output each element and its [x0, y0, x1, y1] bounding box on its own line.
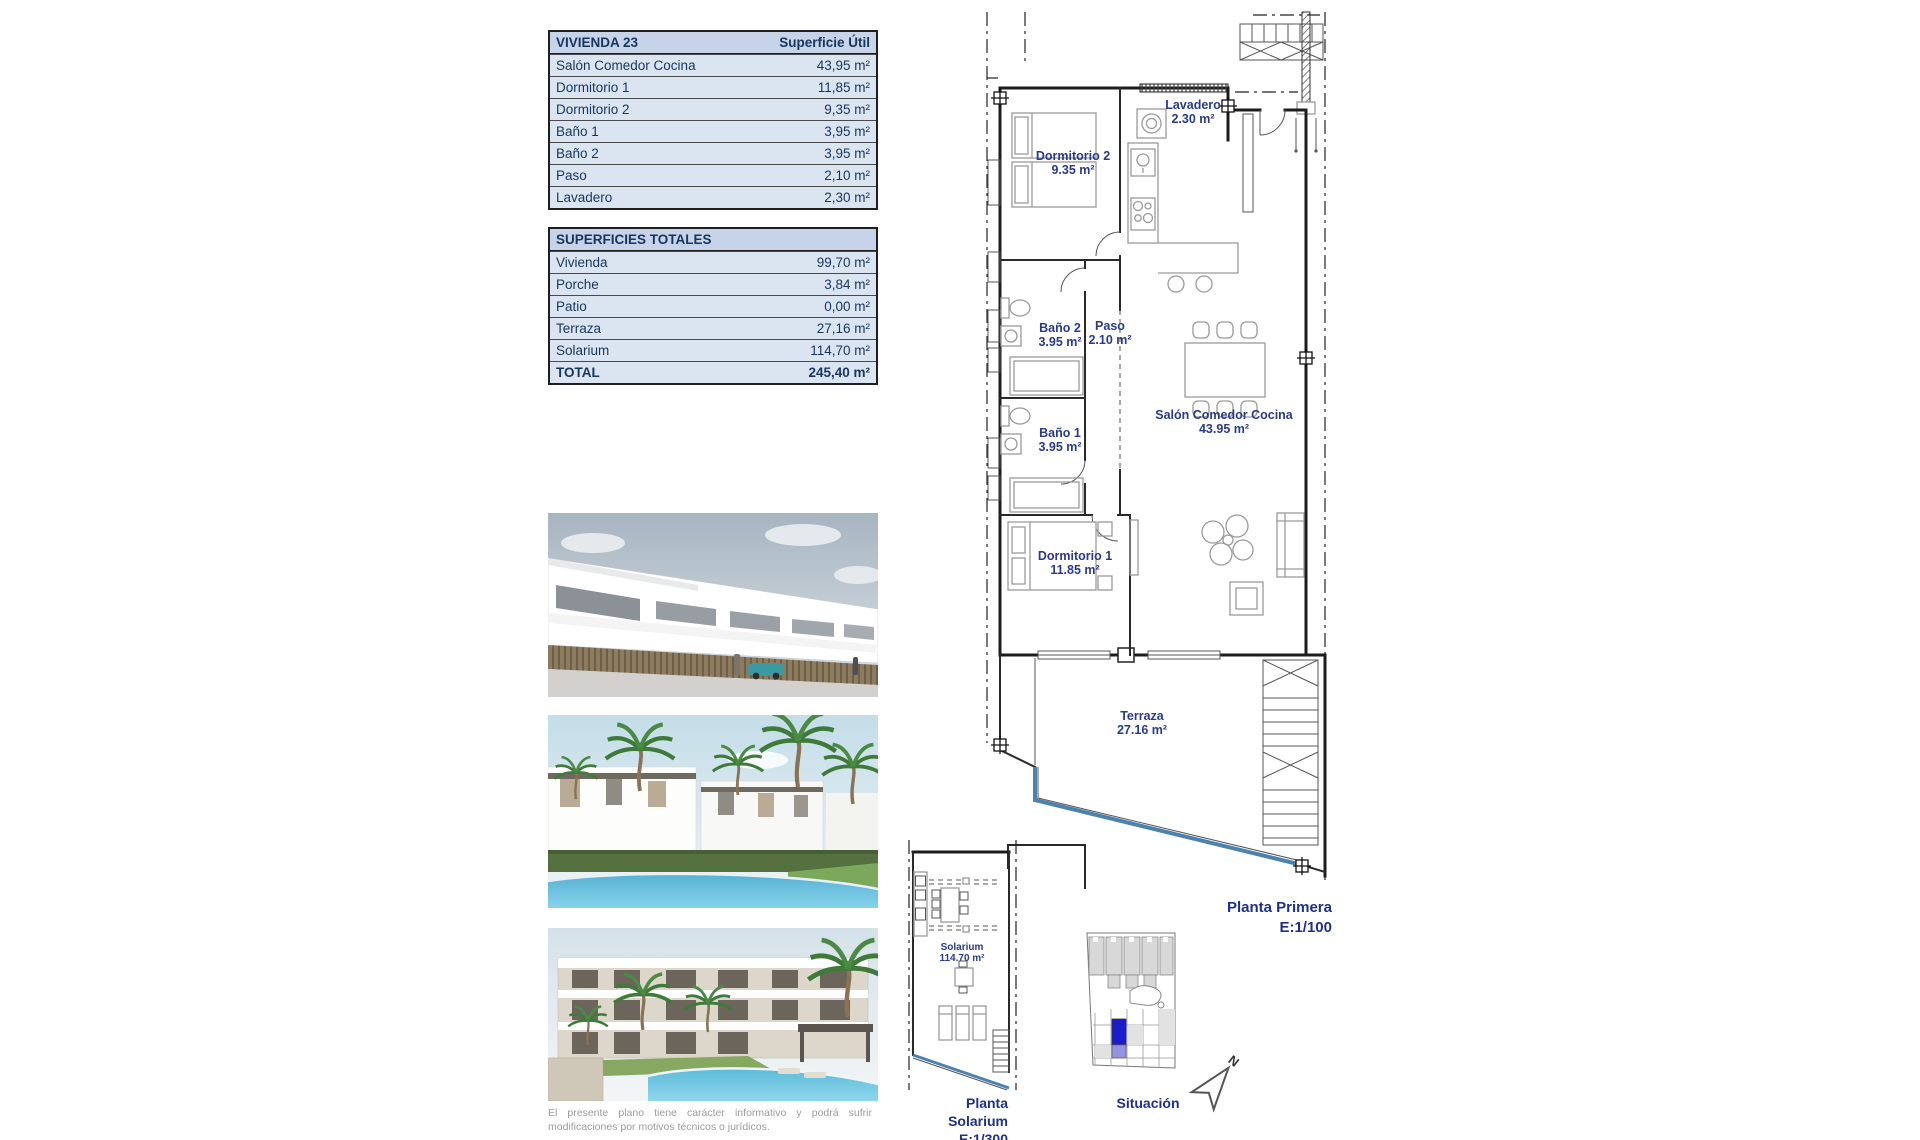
solarium-table — [932, 888, 968, 922]
area-value: 27,16 m² — [817, 321, 870, 336]
area-value: 2,30 m² — [824, 190, 870, 205]
area-value: 114,70 m² — [810, 343, 870, 358]
room-area-dormitorio-2: 9.35 m² — [1051, 163, 1094, 177]
room-label: Dormitorio 2 — [556, 102, 630, 117]
solarium-dining — [955, 961, 973, 993]
room-label: Dormitorio 1 — [556, 80, 630, 95]
area-value: 43,95 m² — [817, 58, 870, 73]
solarium-plan: Solarium 114.70 m² — [905, 840, 1020, 1092]
area-value: 2,10 m² — [824, 168, 870, 183]
pool-render-scene — [548, 715, 878, 908]
surface-label: Porche — [556, 277, 599, 292]
table-row: Lavadero2,30 m² — [550, 186, 876, 208]
armchair — [1230, 582, 1263, 615]
table-title: VIVIENDA 23 — [556, 35, 638, 50]
caption-title: Planta Solarium — [948, 1095, 1008, 1129]
solarium-caption: Planta Solarium E:1/300 — [905, 1094, 1008, 1140]
table-row: Baño 13,95 m² — [550, 120, 876, 142]
totals-table: SUPERFICIES TOTALES Vivienda99,70 m² Por… — [548, 227, 878, 385]
table-row: Salón Comedor Cocina43,95 m² — [550, 54, 876, 76]
room-label-bano-1: Baño 1 — [1039, 426, 1081, 440]
amenity-area — [1130, 986, 1161, 1006]
dining-table — [1185, 322, 1265, 417]
table-row: Porche3,84 m² — [550, 273, 876, 295]
total-value: 245,40 m² — [808, 365, 870, 380]
room-label: Paso — [556, 168, 587, 183]
room-label-terraza: Terraza — [1120, 709, 1165, 723]
floor-plan-caption: Planta Primera E:1/100 — [1200, 898, 1332, 937]
room-area-bano-1: 3.95 m² — [1038, 440, 1081, 454]
party-wall-hatch — [1302, 12, 1310, 104]
render-photo-apartments — [548, 928, 878, 1101]
common-stair-top — [1240, 24, 1323, 60]
table-row: Vivienda99,70 m² — [550, 251, 876, 273]
room-label-bano-2: Baño 2 — [1039, 321, 1081, 335]
room-area-lavadero: 2.30 m² — [1171, 112, 1214, 126]
surface-label: Vivienda — [556, 255, 608, 270]
caption-scale: E:1/300 — [905, 1130, 1008, 1140]
highlighted-unit-terrace — [1112, 1045, 1126, 1058]
table-row-total: TOTAL245,40 m² — [550, 361, 876, 383]
surface-label: Solarium — [556, 343, 609, 358]
table-title: SUPERFICIES TOTALES — [556, 232, 712, 247]
area-value: 3,95 m² — [824, 146, 870, 161]
room-area-terraza: 27.16 m² — [1117, 723, 1167, 737]
caption-title: Situación — [1116, 1095, 1179, 1111]
room-label: Salón Comedor Cocina — [556, 58, 696, 73]
street-render-scene — [548, 513, 878, 697]
room-label: Baño 2 — [556, 146, 599, 161]
room-area-solarium: 114.70 m² — [939, 953, 985, 964]
situation-map — [1075, 925, 1187, 1093]
table-row: Solarium114,70 m² — [550, 339, 876, 361]
caption-title: Planta Primera — [1227, 899, 1332, 916]
room-area-dormitorio-1: 11.85 m² — [1050, 563, 1099, 577]
room-label: Baño 1 — [556, 124, 599, 139]
surface-label: Terraza — [556, 321, 601, 336]
area-value: 9,35 m² — [824, 102, 870, 117]
north-arrow: N — [1185, 1045, 1247, 1117]
vent-grille-wall — [1140, 84, 1228, 92]
tv-unit — [1130, 520, 1138, 575]
area-value: 3,84 m² — [824, 277, 870, 292]
round-seating — [1202, 515, 1253, 565]
render-photo-street — [548, 513, 878, 697]
room-area-bano-2: 3.95 m² — [1038, 335, 1081, 349]
table-row: Baño 23,95 m² — [550, 142, 876, 164]
total-label: TOTAL — [556, 365, 600, 380]
room-label: Lavadero — [556, 190, 612, 205]
table-row: Dormitorio 111,85 m² — [550, 76, 876, 98]
unit-areas-table: VIVIENDA 23 Superficie Útil Salón Comedo… — [548, 30, 878, 210]
staircase — [1263, 660, 1318, 845]
table-row: Patio0,00 m² — [550, 295, 876, 317]
room-label-dormitorio-2: Dormitorio 2 — [1036, 149, 1110, 163]
floor-plan-planta-primera: Dormitorio 2 9.35 m² Lavadero 2.30 m² Ba… — [980, 10, 1360, 890]
area-value: 99,70 m² — [817, 255, 870, 270]
washer-icon — [1137, 109, 1166, 138]
room-label-solarium: Solarium — [941, 942, 984, 953]
entry-door-swing — [1260, 110, 1285, 135]
room-label-paso: Paso — [1095, 319, 1125, 333]
room-area-paso: 2.10 m² — [1088, 333, 1131, 347]
bathroom1-fixtures — [1001, 406, 1083, 512]
neighbour-fixtures — [988, 160, 1000, 500]
entry-closet — [1243, 114, 1253, 212]
solarium-stairs — [993, 1030, 1009, 1072]
table-row: Paso2,10 m² — [550, 164, 876, 186]
sofa — [1277, 513, 1304, 577]
table-header-value: Superficie Útil — [779, 35, 870, 50]
room-area-salon: 43.95 m² — [1199, 422, 1249, 436]
render-photo-pool — [548, 715, 878, 908]
room-label-dormitorio-1: Dormitorio 1 — [1038, 549, 1112, 563]
kitchen-fixtures — [1128, 143, 1238, 292]
area-value: 0,00 m² — [824, 299, 870, 314]
table-header: VIVIENDA 23 Superficie Útil — [550, 32, 876, 54]
table-header: SUPERFICIES TOTALES — [550, 229, 876, 251]
apartments-render-scene — [548, 928, 878, 1101]
surface-label: Patio — [556, 299, 587, 314]
room-label-salon: Salón Comedor Cocina — [1155, 408, 1294, 422]
plan-sheet: VIVIENDA 23 Superficie Útil Salón Comedo… — [0, 0, 1920, 1140]
table-row: Terraza27,16 m² — [550, 317, 876, 339]
highlighted-unit-plot — [1112, 1019, 1126, 1045]
area-value: 3,95 m² — [824, 124, 870, 139]
area-value: 11,85 m² — [818, 80, 870, 95]
disclaimer-text: El presente plano tiene carácter informa… — [548, 1106, 872, 1134]
table-row: Dormitorio 29,35 m² — [550, 98, 876, 120]
caption-scale: E:1/100 — [1200, 918, 1332, 938]
room-label-lavadero: Lavadero — [1165, 98, 1221, 112]
glass-balustrade — [1035, 767, 1302, 865]
sun-loungers — [939, 1006, 986, 1040]
